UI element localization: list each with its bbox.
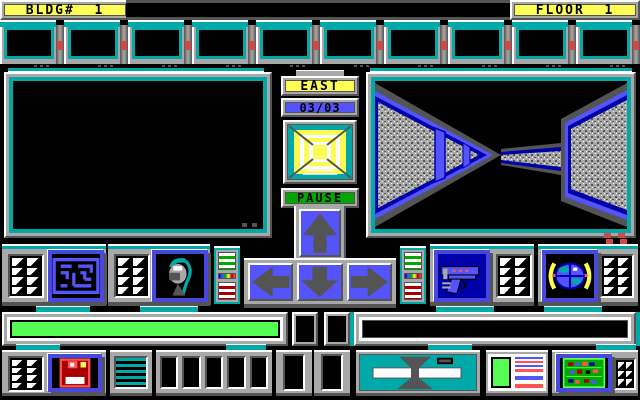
red-indicator xyxy=(218,282,236,300)
vent-grille xyxy=(114,254,150,298)
move-up-button[interactable] xyxy=(299,209,341,257)
energy-bar xyxy=(491,357,511,388)
direction-indicator: EAST xyxy=(281,76,359,96)
arrow-down-icon xyxy=(299,265,340,299)
slot-bank-panel xyxy=(156,350,272,396)
corridor-viewport xyxy=(366,72,636,238)
map-viewport xyxy=(4,72,272,238)
weapon-button[interactable] xyxy=(434,250,490,302)
system-button[interactable] xyxy=(556,354,612,392)
building-label-text: BLDG# 1 xyxy=(4,4,126,16)
monitor-screen xyxy=(68,27,118,59)
red-indicator-light xyxy=(376,25,384,64)
maze-icon xyxy=(52,254,100,298)
green-indicator xyxy=(218,252,236,270)
red-status-light xyxy=(618,233,625,238)
vertical-slot xyxy=(324,312,350,346)
red-indicator-light xyxy=(248,25,256,64)
scanner-button-panel xyxy=(538,244,638,306)
arrow-right-icon xyxy=(349,265,390,299)
teal-edge xyxy=(636,312,640,346)
monitor xyxy=(128,20,192,68)
red-indicator-light xyxy=(184,25,192,64)
monitor-screen xyxy=(388,27,438,59)
map-button-panel xyxy=(2,244,106,306)
monitor-screen xyxy=(132,27,182,59)
direction-text: EAST xyxy=(285,80,355,92)
move-down-button[interactable] xyxy=(297,263,342,301)
arrow-up-icon xyxy=(301,211,339,255)
red-indicator-light xyxy=(56,25,64,64)
message-panel xyxy=(354,312,636,346)
weapon-button-panel xyxy=(430,244,534,306)
monitor xyxy=(0,20,64,68)
message-display xyxy=(362,320,628,338)
green-indicator xyxy=(404,252,422,270)
dpad-up-housing xyxy=(294,206,346,260)
position-counter: 03/03 xyxy=(281,98,359,117)
vertical-slot xyxy=(292,312,318,346)
character-button[interactable] xyxy=(152,250,208,302)
red-indicator-light xyxy=(632,25,640,64)
disk-button-panel xyxy=(2,350,106,396)
red-indicator xyxy=(404,282,422,300)
red-indicator-light xyxy=(312,25,320,64)
monitor-row xyxy=(0,20,640,68)
floor-label: FLOOR 1 xyxy=(510,0,640,20)
monitor xyxy=(64,20,128,68)
monitor xyxy=(320,20,384,68)
red-indicator xyxy=(515,382,543,388)
gun-icon xyxy=(438,254,486,298)
tunnel-view-indicator xyxy=(283,120,357,184)
pause-button[interactable]: PAUSE xyxy=(281,188,359,208)
vertical-slot xyxy=(321,354,343,391)
floppy-disk-icon xyxy=(52,358,98,388)
droid-icon xyxy=(156,254,204,298)
system-button-panel xyxy=(552,350,638,396)
vent-stripes xyxy=(114,356,148,389)
multicolor-indicator xyxy=(218,273,236,279)
monitor xyxy=(512,20,576,68)
monitor xyxy=(384,20,448,68)
monitor xyxy=(448,20,512,68)
building-label: BLDG# 1 xyxy=(0,0,130,20)
vent-grille xyxy=(496,254,532,298)
red-status-light xyxy=(620,239,627,244)
position-text: 03/03 xyxy=(285,102,355,113)
move-right-button[interactable] xyxy=(347,263,392,301)
move-left-button[interactable] xyxy=(248,263,293,301)
monitor-screen xyxy=(260,27,310,59)
gauge-indicators xyxy=(515,357,543,388)
slot-bank xyxy=(156,352,272,393)
arrow-left-icon xyxy=(250,265,291,299)
vent-panel xyxy=(110,350,152,396)
top-bar xyxy=(126,0,514,20)
slot-panel xyxy=(276,350,312,396)
health-bar xyxy=(10,320,280,338)
monitor-screen xyxy=(452,27,502,59)
screw xyxy=(252,223,257,227)
character-button-panel xyxy=(108,244,210,306)
globe-icon xyxy=(546,254,594,298)
corridor-3d-view xyxy=(371,77,631,233)
monitor-screen xyxy=(324,27,374,59)
monitor xyxy=(192,20,256,68)
screw xyxy=(242,223,247,227)
vertical-slot xyxy=(283,354,305,391)
map-screen xyxy=(9,77,267,233)
circuit-board-icon xyxy=(560,358,608,388)
health-bar-panel xyxy=(2,312,288,346)
monitor-screen xyxy=(4,27,54,59)
floor-label-text: FLOOR 1 xyxy=(514,4,636,16)
vent-grille xyxy=(8,254,44,298)
scanner-button[interactable] xyxy=(542,250,598,302)
tunnel-icon xyxy=(287,124,353,180)
multicolor-indicator xyxy=(404,273,422,279)
indicator-panel-right xyxy=(400,246,426,304)
red-status-light xyxy=(606,239,613,244)
red-indicator-light xyxy=(120,25,128,64)
monitor xyxy=(256,20,320,68)
game-screen: BLDG# 1 FLOOR 1 EAST 03/03 xyxy=(0,0,640,400)
monitor-screen xyxy=(580,27,630,59)
monitor-screen xyxy=(516,27,566,59)
indicator-panel-left xyxy=(214,246,240,304)
monitor xyxy=(576,20,640,68)
disk-drive-panel xyxy=(356,350,480,396)
map-button[interactable] xyxy=(48,250,104,302)
monitor-screen xyxy=(196,27,246,59)
red-indicator-light xyxy=(504,25,512,64)
pause-label: PAUSE xyxy=(285,192,355,204)
save-disk-button[interactable] xyxy=(48,354,102,392)
vent-grille xyxy=(600,254,634,298)
red-status-light xyxy=(604,233,611,238)
red-indicator-light xyxy=(568,25,576,64)
blue-indicator xyxy=(515,374,543,380)
energy-gauge-panel xyxy=(486,350,548,396)
red-indicator-light xyxy=(440,25,448,64)
vent-grille xyxy=(614,358,636,390)
disk-drive-icon[interactable] xyxy=(359,354,477,391)
slot-panel xyxy=(314,350,350,396)
corridor-scene xyxy=(375,81,627,229)
vent-grille xyxy=(8,356,44,392)
dpad-row xyxy=(244,258,396,308)
